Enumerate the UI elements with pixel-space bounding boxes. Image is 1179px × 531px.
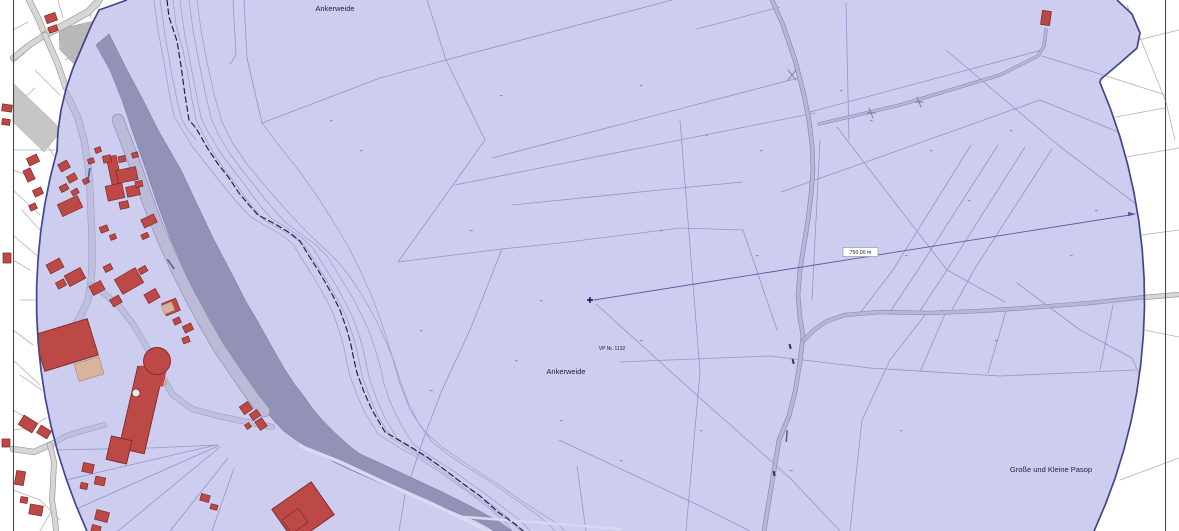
svg-text:Große und Kleine Pasop: Große und Kleine Pasop xyxy=(1010,465,1092,474)
svg-text:750.00 m: 750.00 m xyxy=(850,250,872,256)
svg-text:Ankerweide: Ankerweide xyxy=(546,367,585,376)
svg-text:VP Nr. 1132: VP Nr. 1132 xyxy=(599,346,626,352)
svg-text:Ankerweide: Ankerweide xyxy=(315,4,354,13)
